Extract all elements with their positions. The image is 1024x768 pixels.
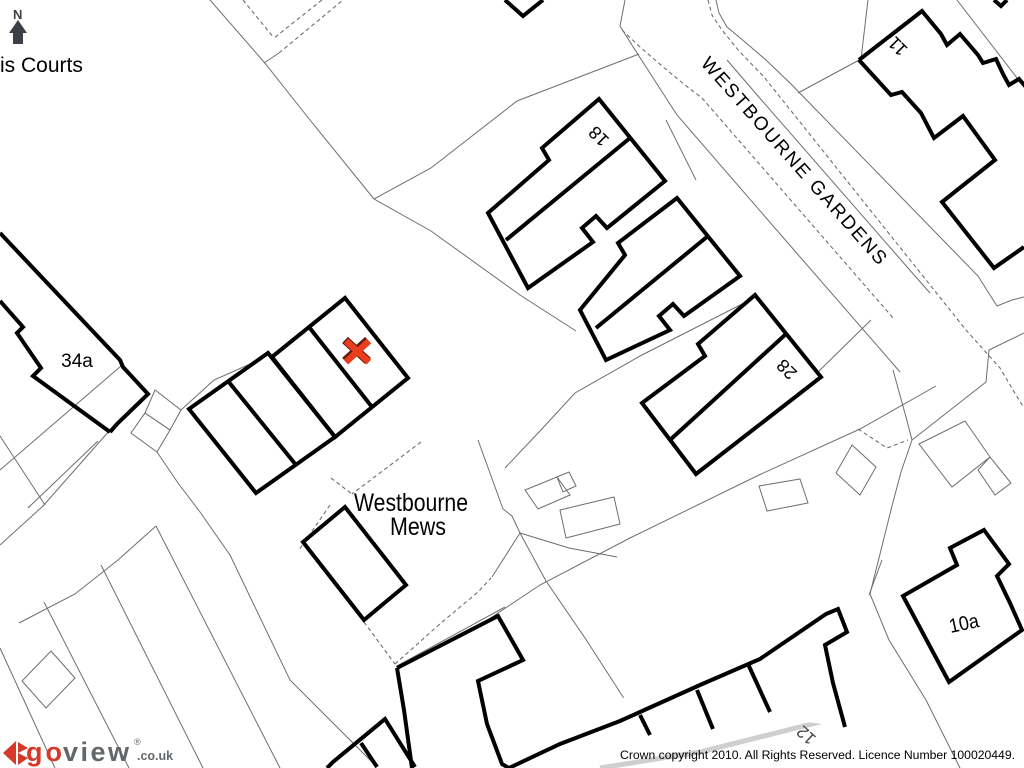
svg-text:Crown copyright 2010. All Righ: Crown copyright 2010. All Rights Reserve… [620,748,1015,762]
svg-text:go: go [26,737,65,767]
svg-text:view: view [63,737,132,767]
svg-text:34a: 34a [61,351,93,372]
svg-text:N: N [13,7,22,22]
svg-text:®: ® [134,737,141,747]
svg-text:.co.uk: .co.uk [137,749,173,763]
svg-text:Mews: Mews [390,513,446,541]
svg-text:is Courts: is Courts [0,54,83,77]
